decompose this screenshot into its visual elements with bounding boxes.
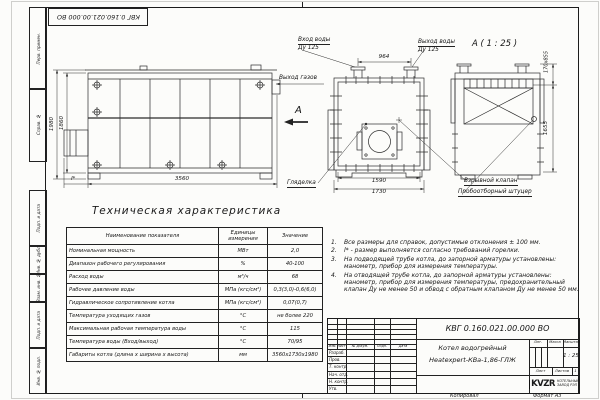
callout-sampling-fitting: Пробоотборный штуцер [458,190,532,197]
spec-value: не более 220 [268,310,323,323]
footer-copied-label: Копировал [450,393,479,399]
spec-value: 68 [268,271,323,284]
note-text: Все размеры для справок, допустимые откл… [344,239,581,246]
table-row: Габариты котла (длина х ширина х высота)… [67,349,323,362]
callout-water-outlet: Выход воды Ду 125 [418,40,455,54]
spec-col-value: Значение [268,228,323,245]
lit-label: Лит. [529,341,547,345]
detail-view-title: А ( 1 : 25 ) [472,40,517,49]
spec-name: Максимальная рабочая температура воды [67,323,219,336]
spec-name: Диапазон рабочего регулирования [67,258,219,271]
scale-label: Масштаб [563,341,579,345]
spec-name: Гидравлическое сопротивление котла [67,297,219,310]
view-arrow-letter: А [295,106,302,116]
spec-name: Температура уходящих газов [67,310,219,323]
note-text: На подводящей трубе котла, до запорной а… [344,256,581,271]
rev-header-izm: Изм. [328,345,337,348]
spec-value: 115 [268,323,323,336]
callout-explosion-valve: Взрывной клапан [464,179,518,186]
product-name-line1: Котел водогрейный [416,345,529,352]
list-item: 1.Все размеры для справок, допустимые от… [331,239,581,246]
front-view-dimensions [302,50,424,193]
table-row: Максимальная рабочая температура воды°С1… [67,323,323,336]
spec-col-unit: Единицы измерения [219,228,268,245]
spec-value: 0,07(0,7) [268,297,323,310]
table-row: Расход водым³/ч68 [67,271,323,284]
divider-line [541,347,542,367]
dim-side-length: 3560 [175,177,189,183]
divider-line [374,319,375,393]
callout-leaders [276,84,532,192]
side-view-dimensions [53,70,277,188]
spec-name: Габариты котла (длина х ширина х высота) [67,349,219,362]
spec-unit: °С [219,323,268,336]
sheet-label: Лист [529,369,552,373]
callout-water-inlet-line2: Ду 125 [298,46,330,52]
list-item: 4.На отводящей трубе котла, до запорной … [331,272,581,294]
dim-front-flanges: 964 [379,55,390,61]
table-row: Номинальная мощностьМВт2,0 [67,245,323,258]
note-text: На отводящей трубе котла, до запорной ар… [344,272,581,294]
spec-value: 70/95 [268,336,323,349]
divider-line [328,339,416,340]
rev-header-data: Дата [390,345,416,348]
rev-header-list: Лист [337,345,346,348]
sheets-label: Листов [552,369,572,373]
dim-front-width-outer: 1730 [372,190,386,196]
dim-front-width-inner: 1590 [372,179,386,185]
table-row: Температура воды (Вход/выход)°С70/95 [67,336,323,349]
spec-col-name: Наименование показателя [67,228,219,245]
sig-row-utv: Утв. [329,387,337,391]
divider-line [535,347,536,367]
notes-list: 1.Все размеры для справок, допустимые от… [331,239,581,295]
spec-name: Температура воды (Вход/выход) [67,336,219,349]
spec-unit: °С [219,310,268,323]
logo-text: KVZR [531,379,555,389]
callout-water-outlet-line2: Ду 125 [418,48,455,54]
mass-label: Масса [547,341,563,345]
table-row: Диапазон рабочего регулирования%40-100 [67,258,323,271]
view-direction-arrow [284,119,308,126]
dim-detail-top: 170х855 [545,51,550,73]
drawing-sheet: КВГ 0.160.021.00.000 ВО Перв. примен. Сп… [0,0,600,400]
rev-header-podp: Подп. [374,345,390,348]
manufacturer-logo: KVZR КОТЕЛЬНЫЙ ЗАВОД РЭП [529,375,579,393]
sig-row-nkontr: Н. контр. [329,380,348,384]
spec-name: Расход воды [67,271,219,284]
list-item: 3.На подводящей трубе котла, до запорной… [331,256,581,271]
doc-number: КВГ 0.160.021.00.000 ВО [416,325,579,333]
note-number: 2. [331,247,344,254]
table-row: Гидравлическое сопротивление котлаМПа (к… [67,297,323,310]
spec-name: Рабочее давление воды [67,284,219,297]
spec-table: Наименование показателя Единицы измерени… [66,227,323,362]
sig-row-tkontr: Т. контр. [329,365,348,369]
spec-table-title: Техническая характеристика [66,205,307,217]
scale-value: 1 : 25 [563,354,579,360]
callout-water-inlet-line1: Вход воды [298,38,330,45]
note-text: l* - размер выполняется согласно требова… [344,247,581,254]
table-row: Температура уходящих газов°Сне более 220 [67,310,323,323]
divider-line [328,385,416,386]
spec-unit: МПа (кгс/см²) [219,284,268,297]
divider-line [390,319,391,393]
spec-value: 0,3(3,0)-0,6(6,0) [268,284,323,297]
spec-value: 40-100 [268,258,323,271]
front-view [328,67,430,177]
spec-value: 3560х1730х1980 [268,349,323,362]
dim-burner: l* [71,177,75,183]
spec-unit: м³/ч [219,271,268,284]
spec-unit: °С [219,336,268,349]
spec-value: 2,0 [268,245,323,258]
logo-subtext: КОТЕЛЬНЫЙ ЗАВОД РЭП [557,380,579,387]
divider-line [328,329,416,330]
callout-sight-glass: Гляделка [287,181,316,188]
spec-unit: % [219,258,268,271]
footer-format-label: Формат А3 [533,393,561,399]
divider-line [328,356,416,357]
callout-water-outlet-line1: Выход воды [418,40,455,47]
list-item: 2.l* - размер выполняется согласно требо… [331,247,581,254]
sig-row-nachotd: Нач. отд. [329,373,348,377]
sig-row-razrab: Разраб. [329,351,345,355]
product-name-line2: Heatexpert-КВа-1,86-ГЛЖ [416,357,529,364]
spec-unit: мм [219,349,268,362]
note-number: 1. [331,239,344,246]
divider-line [416,375,529,376]
note-number: 3. [331,256,344,271]
divider-line [328,324,416,325]
spec-unit: МПа (кгс/см²) [219,297,268,310]
logo-sub-line2: ЗАВОД РЭП [557,384,579,388]
side-view [64,65,280,179]
dim-detail-height: 1655 [544,121,550,135]
spec-header-row: Наименование показателя Единицы измерени… [67,228,323,245]
detail-view [451,64,544,179]
dim-side-height-inner: 1860 [60,116,66,130]
dim-side-height-outer: 1980 [50,117,56,131]
spec-unit: МВт [219,245,268,258]
callout-gas-outlet: Выход газов [279,76,317,82]
divider-line [328,334,416,335]
callout-water-inlet: Вход воды Ду 125 [298,38,330,52]
table-row: Рабочее давление водыМПа (кгс/см²)0,3(3,… [67,284,323,297]
note-number: 4. [331,272,344,294]
spec-name: Номинальная мощность [67,245,219,258]
sheets-value: 1 [572,369,579,373]
title-block: КВГ 0.160.021.00.000 ВО Котел водогрейны… [327,318,580,394]
divider-line [529,347,579,348]
rev-header-docnum: № докум. [346,345,374,348]
sig-row-prov: Пров. [329,358,341,362]
